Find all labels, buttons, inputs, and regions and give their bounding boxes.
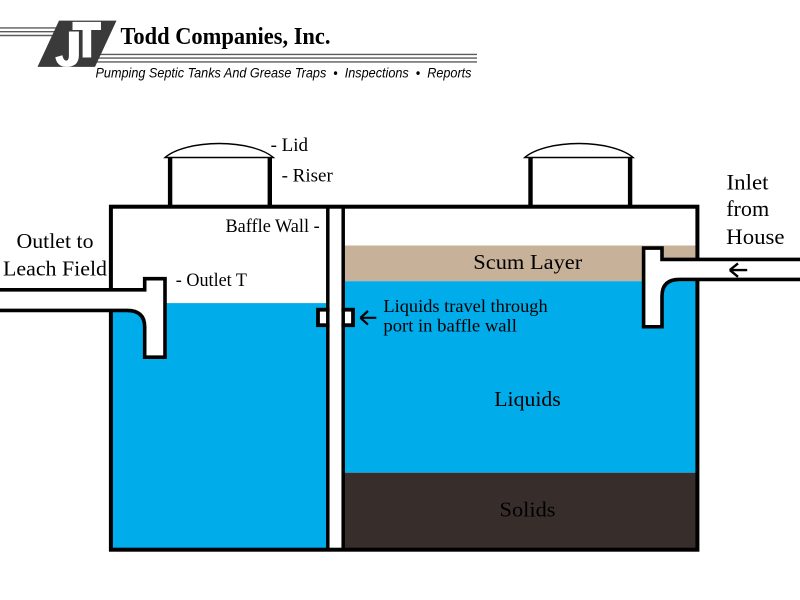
svg-text:Solids: Solids [500, 498, 556, 522]
svg-text:Leach Field: Leach Field [3, 256, 107, 280]
svg-text:Baffle Wall -: Baffle Wall - [226, 216, 320, 237]
svg-text:- Lid: - Lid [271, 135, 309, 156]
svg-text:Todd Companies, Inc.: Todd Companies, Inc. [121, 24, 331, 50]
svg-text:Outlet to: Outlet to [17, 229, 94, 253]
svg-text:- Riser: - Riser [282, 166, 334, 187]
svg-text:House: House [726, 224, 784, 249]
svg-text:from: from [726, 196, 769, 221]
svg-text:Scum Layer: Scum Layer [473, 250, 582, 274]
svg-text:Liquids: Liquids [494, 387, 561, 411]
svg-text:Liquids travel through: Liquids travel through [383, 296, 547, 316]
svg-text:Pumping Septic Tanks And Greas: Pumping Septic Tanks And Grease Traps • … [96, 66, 472, 81]
svg-text:port in baffle wall: port in baffle wall [383, 315, 517, 335]
svg-text:- Outlet T: - Outlet T [176, 271, 247, 291]
svg-text:Inlet: Inlet [727, 169, 770, 194]
